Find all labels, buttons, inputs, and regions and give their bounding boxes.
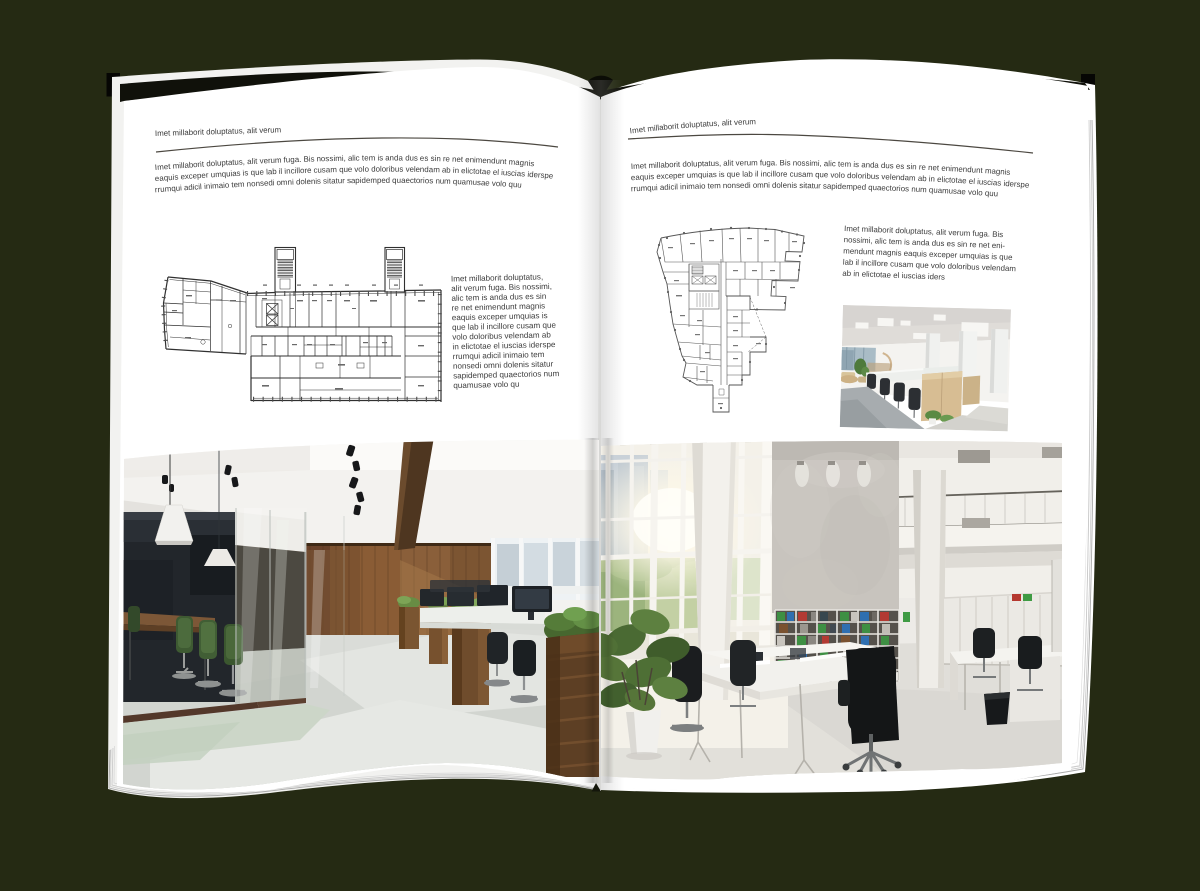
svg-text:quamusae volo qu: quamusae volo qu (453, 380, 519, 390)
